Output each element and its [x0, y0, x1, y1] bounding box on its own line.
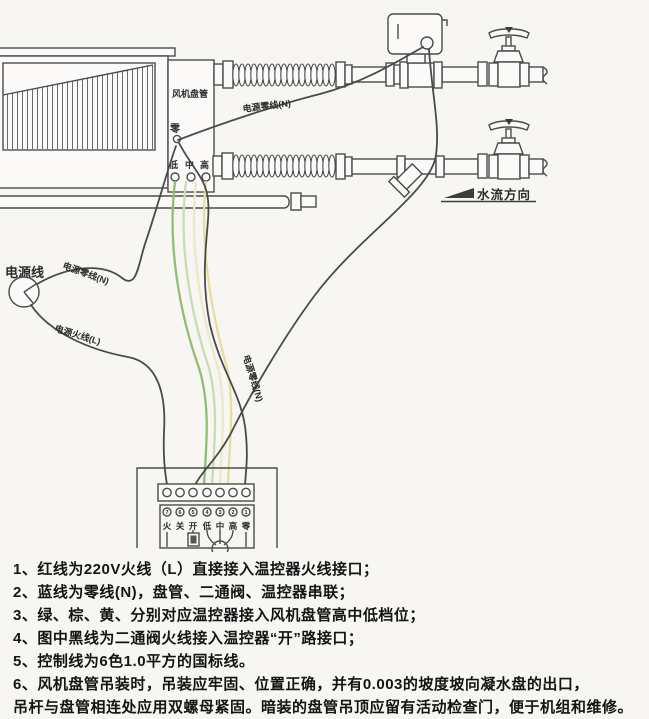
thermostat: 7 6 5 4 3 2 1 火 关 开 低 中 高 零: [137, 468, 277, 552]
power-neutral-label-bundle: 电源零线(N): [241, 353, 266, 403]
high-terminal-screw: [202, 173, 210, 181]
svg-text:1: 1: [244, 510, 247, 516]
svg-text:3: 3: [218, 510, 221, 516]
svg-text:6: 6: [178, 510, 181, 516]
flexible-hose-return: [233, 155, 335, 177]
wiring-diagram: 风机盘管 零 低 中 高: [0, 0, 649, 552]
svg-text:火: 火: [163, 521, 172, 531]
installation-notes: 1、红线为220V火线（L）直接接入温控器火线接口； 2、蓝线为零线(N)，盘管…: [0, 552, 649, 719]
svg-text:开: 开: [189, 521, 198, 531]
svg-text:5: 5: [191, 510, 194, 516]
svg-text:高: 高: [229, 521, 238, 531]
wire-green-low: [173, 182, 207, 485]
fan-coil-unit: 风机盘管 零 低 中 高: [0, 48, 214, 192]
thermostat-terminal-numbers: 7 6 5 4 3 2 1: [163, 508, 250, 516]
wire-power-live: [31, 305, 167, 485]
power-live-label: 电源火线(L): [53, 322, 102, 346]
mid-terminal-screw: [187, 173, 195, 181]
note-1: 1、红线为220V火线（L）直接接入温控器火线接口；: [13, 558, 637, 581]
svg-text:低: 低: [202, 521, 212, 531]
return-pipe-run: [213, 153, 487, 179]
note-4: 4、图中黑线为二通阀火线接入温控器“开”路接口；: [13, 627, 637, 650]
note-5: 5、控制线为6色1.0平方的国标线。: [13, 650, 637, 673]
valve-actuator-box: [388, 14, 442, 54]
svg-text:7: 7: [165, 510, 168, 516]
power-source: 电源线: [5, 265, 44, 307]
gate-valve-supply: [489, 27, 547, 87]
wire-neutral-coil-to-valve: [178, 47, 423, 140]
fan-coil-label: 风机盘管: [172, 88, 208, 99]
note-6: 6、风机盘管吊装时，吊装应牢固、位置正确，并有0.003的坡度坡向凝水盘的出口，…: [13, 673, 637, 719]
svg-text:关: 关: [176, 521, 185, 531]
svg-text:中: 中: [216, 521, 225, 531]
thermostat-internal-schematic: [167, 530, 246, 552]
high-terminal-label: 高: [200, 159, 209, 170]
flexible-hose-supply: [233, 64, 335, 86]
power-neutral-label-top: 电源零线(N): [242, 97, 291, 114]
flow-direction: 水流方向: [441, 187, 536, 202]
gate-valve-return: [489, 119, 547, 179]
neutral-terminal-label: 零: [169, 122, 181, 135]
fan-coil-top-lip: [0, 48, 175, 56]
power-neutral-label-left: 电源零线(N): [61, 260, 110, 287]
note-3: 3、绿、棕、黄、分别对应温控器接入风机盘管高中低档位；: [13, 604, 637, 627]
low-terminal-screw: [171, 173, 179, 181]
thermostat-terminal-names: 火 关 开 低 中 高 零: [163, 521, 251, 531]
note-2: 2、蓝线为零线(N)，盘管、二通阀、温控器串联；: [13, 581, 637, 604]
svg-text:2: 2: [231, 510, 234, 516]
flow-direction-wedge-icon: [444, 188, 474, 198]
svg-text:零: 零: [241, 521, 251, 531]
flow-direction-label: 水流方向: [477, 187, 531, 202]
